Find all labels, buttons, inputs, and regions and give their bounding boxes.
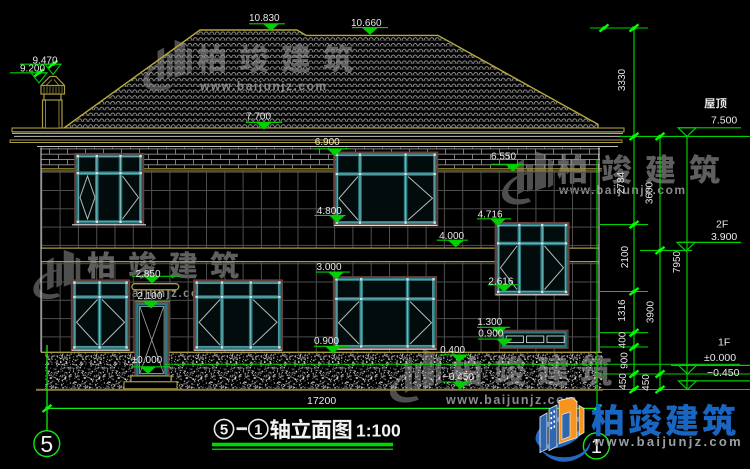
svg-text:2.100: 2.100	[137, 291, 162, 302]
svg-text:450: 450	[618, 373, 629, 390]
svg-text:1F: 1F	[718, 337, 730, 349]
svg-text:17200: 17200	[307, 395, 336, 407]
svg-text:1:100: 1:100	[356, 421, 401, 441]
svg-text:www.baijunjz.com: www.baijunjz.com	[445, 393, 578, 407]
svg-text:6.550: 6.550	[491, 152, 516, 163]
svg-text:900: 900	[620, 352, 631, 369]
svg-text:7.500: 7.500	[711, 115, 737, 127]
svg-text:450: 450	[641, 374, 652, 391]
svg-text:2100: 2100	[620, 245, 631, 268]
svg-text:3900: 3900	[646, 300, 657, 323]
svg-text:±0.000: ±0.000	[704, 352, 736, 364]
svg-text:10.830: 10.830	[249, 13, 280, 24]
svg-text:4.000: 4.000	[439, 231, 464, 242]
svg-text:0.400: 0.400	[440, 345, 465, 356]
svg-text:7.700: 7.700	[246, 112, 271, 123]
svg-text:4.716: 4.716	[478, 210, 503, 221]
svg-text:1: 1	[254, 421, 262, 438]
svg-text:±0.000: ±0.000	[132, 355, 163, 366]
svg-text:2F: 2F	[716, 219, 728, 231]
svg-text:7950: 7950	[672, 250, 683, 273]
svg-text:−0.450: −0.450	[707, 367, 740, 379]
svg-text:3.900: 3.900	[711, 231, 737, 243]
svg-text:3.000: 3.000	[317, 262, 342, 273]
svg-text:6.900: 6.900	[315, 137, 340, 148]
svg-text:−0.450: −0.450	[443, 372, 474, 383]
svg-text:3330: 3330	[617, 68, 628, 91]
svg-text:0.900: 0.900	[478, 329, 503, 340]
svg-text:400: 400	[618, 331, 629, 348]
svg-text:2784: 2784	[616, 171, 627, 194]
svg-text:1.300: 1.300	[477, 317, 502, 328]
svg-text:2.616: 2.616	[488, 277, 513, 288]
svg-text:3600: 3600	[645, 181, 656, 204]
svg-text:www.baijunjz.com: www.baijunjz.com	[593, 434, 743, 449]
svg-text:4.800: 4.800	[317, 206, 342, 217]
svg-text:10.660: 10.660	[351, 18, 382, 29]
svg-text:1316: 1316	[617, 299, 628, 322]
svg-text:2.850: 2.850	[136, 269, 161, 280]
svg-text:0.900: 0.900	[314, 336, 339, 347]
svg-text:5: 5	[220, 421, 228, 438]
svg-text:5: 5	[40, 431, 53, 457]
svg-text:9.200: 9.200	[20, 64, 45, 75]
